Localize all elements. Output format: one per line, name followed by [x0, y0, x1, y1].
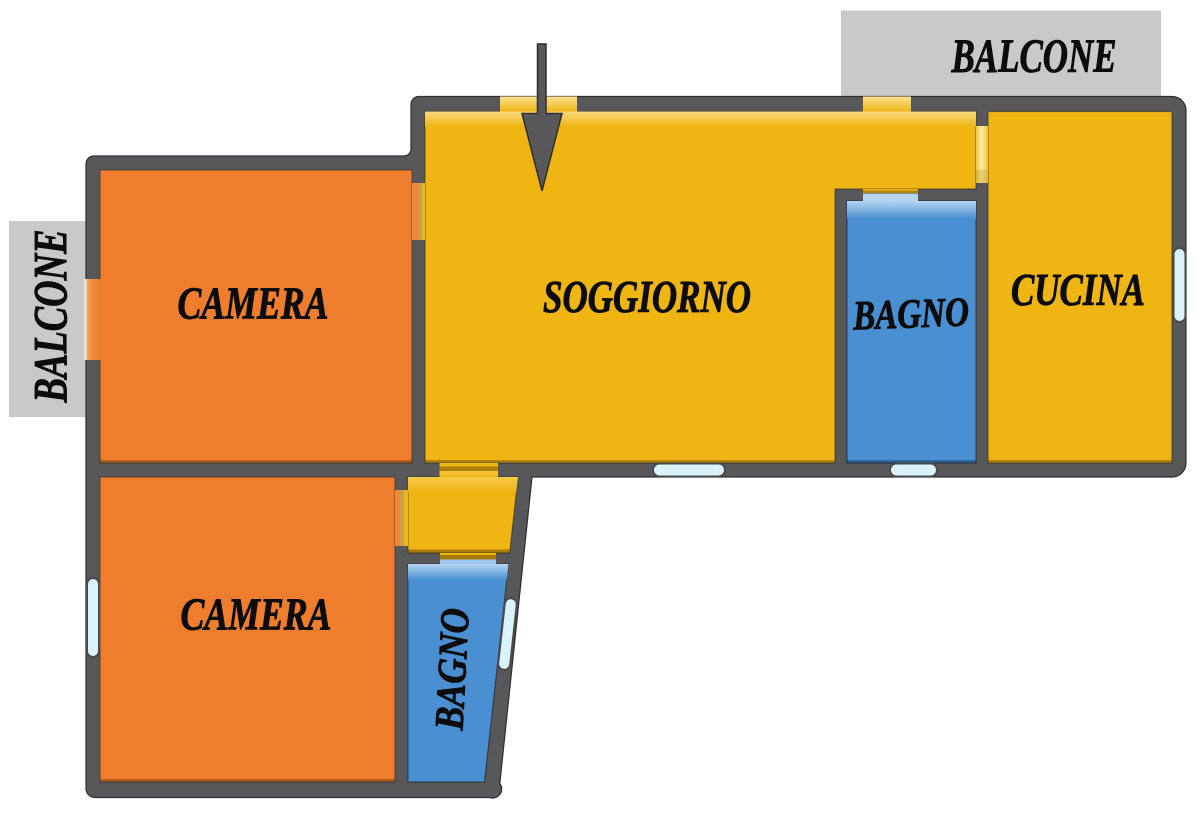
svg-text:BALCONE: BALCONE: [951, 30, 1117, 83]
svg-text:BAGNO: BAGNO: [425, 607, 477, 732]
svg-text:CAMERA: CAMERA: [178, 278, 329, 328]
svg-text:CAMERA: CAMERA: [181, 589, 332, 639]
svg-text:BALCONE: BALCONE: [25, 230, 78, 404]
svg-text:CUCINA: CUCINA: [1011, 265, 1145, 315]
svg-text:SOGGIORNO: SOGGIORNO: [543, 272, 751, 322]
svg-text:BAGNO: BAGNO: [851, 288, 969, 338]
